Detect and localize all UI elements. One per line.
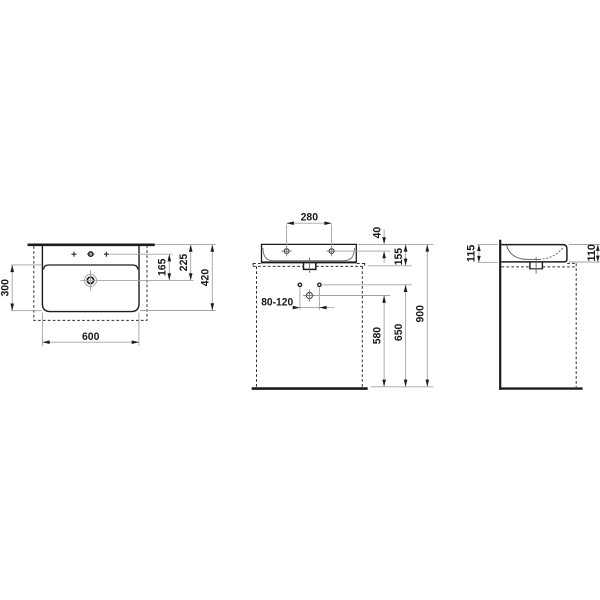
- svg-text:650: 650: [393, 324, 405, 341]
- svg-text:900: 900: [415, 305, 427, 322]
- svg-text:225: 225: [178, 254, 190, 271]
- svg-text:155: 155: [393, 248, 405, 265]
- svg-text:80-120: 80-120: [261, 297, 293, 309]
- svg-text:420: 420: [200, 269, 212, 286]
- svg-text:165: 165: [157, 259, 169, 276]
- svg-text:115: 115: [466, 245, 478, 262]
- svg-text:580: 580: [372, 327, 384, 344]
- svg-text:280: 280: [301, 212, 318, 224]
- svg-text:300: 300: [0, 279, 12, 296]
- svg-text:40: 40: [372, 227, 384, 239]
- svg-text:110: 110: [586, 244, 598, 261]
- svg-text:600: 600: [82, 331, 99, 343]
